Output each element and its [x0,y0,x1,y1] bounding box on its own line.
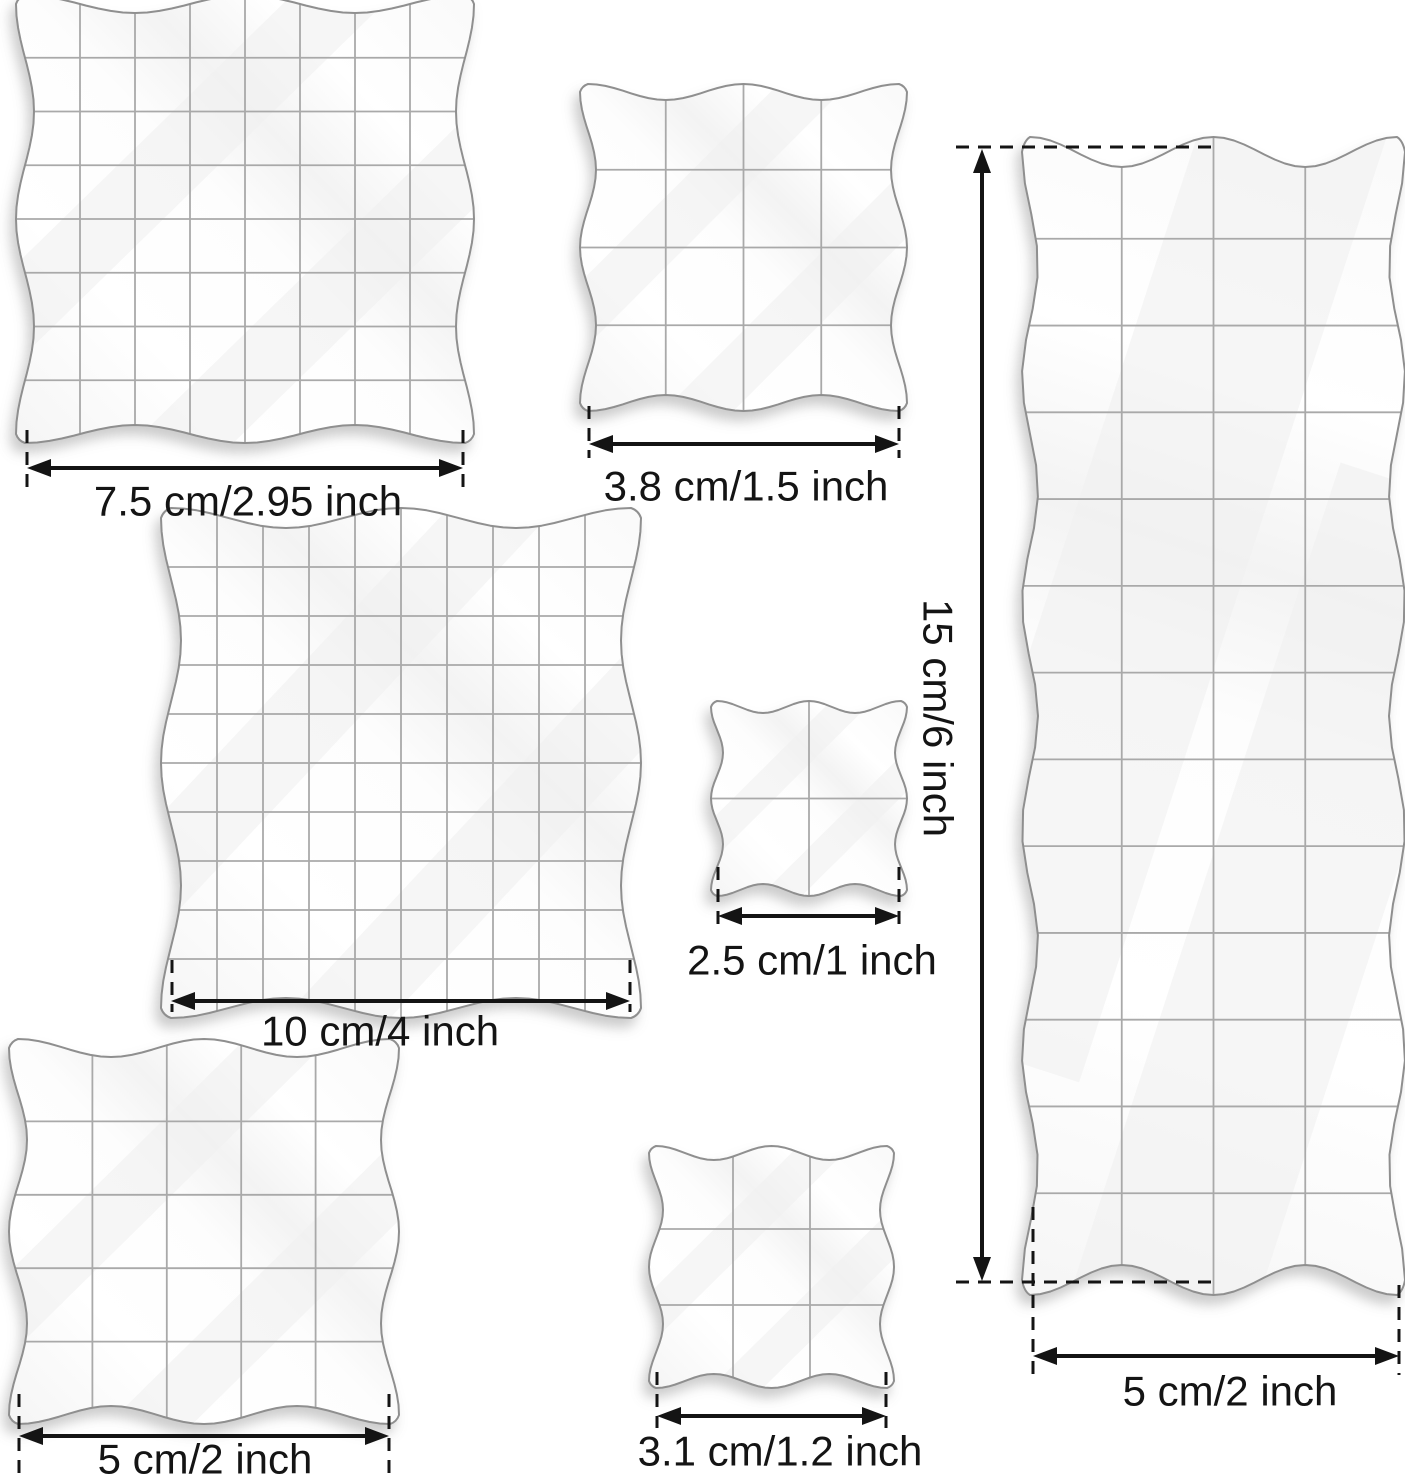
dim-3-8cm: 3.8 cm/1.5 inch [589,406,899,510]
stamp-block-15cm [993,39,1405,1370]
arrowhead-left-icon [19,1427,43,1445]
arrowhead-right-icon [875,435,899,453]
arrowhead-right-icon [439,459,463,477]
stamp-block-5cm-square [0,1011,420,1444]
arrowhead-left-icon [589,435,613,453]
dimension-label: 2.5 cm/1 inch [687,937,937,984]
arrowhead-left-icon [657,1407,681,1425]
dim-7-5cm: 7.5 cm/2.95 inch [27,430,463,525]
arrowhead-left-icon [27,459,51,477]
dimension-label: 3.1 cm/1.2 inch [638,1428,923,1475]
arrowhead-up-icon [973,149,991,173]
arrowhead-right-icon [862,1407,886,1425]
dimension-label: 5 cm/2 inch [98,1436,313,1479]
product-dimension-diagram: 7.5 cm/2.95 inch3.8 cm/1.5 inch15 cm/6 i… [0,0,1405,1479]
arrowhead-left-icon [1033,1347,1057,1365]
arrowhead-down-icon [973,1257,991,1281]
stamp-block-7.5cm [0,0,500,468]
dimension-label: 10 cm/4 inch [261,1008,499,1055]
stamp-block-3.8cm [557,61,924,428]
arrowhead-right-icon [1375,1347,1399,1365]
arrowhead-left-icon [718,907,742,925]
dimension-label: 5 cm/2 inch [1123,1368,1338,1415]
stamp-block-2.5cm [699,689,916,905]
dimension-label: 15 cm/6 inch [915,599,962,837]
arrowhead-right-icon [365,1427,389,1445]
stamp-block-3.1cm [633,1130,906,1399]
arrowhead-right-icon [875,907,899,925]
dimension-label: 7.5 cm/2.95 inch [94,478,402,525]
stamp-block-10cm [125,469,668,1047]
diagram-canvas: 7.5 cm/2.95 inch3.8 cm/1.5 inch15 cm/6 i… [0,0,1405,1479]
dimension-label: 3.8 cm/1.5 inch [604,463,889,510]
